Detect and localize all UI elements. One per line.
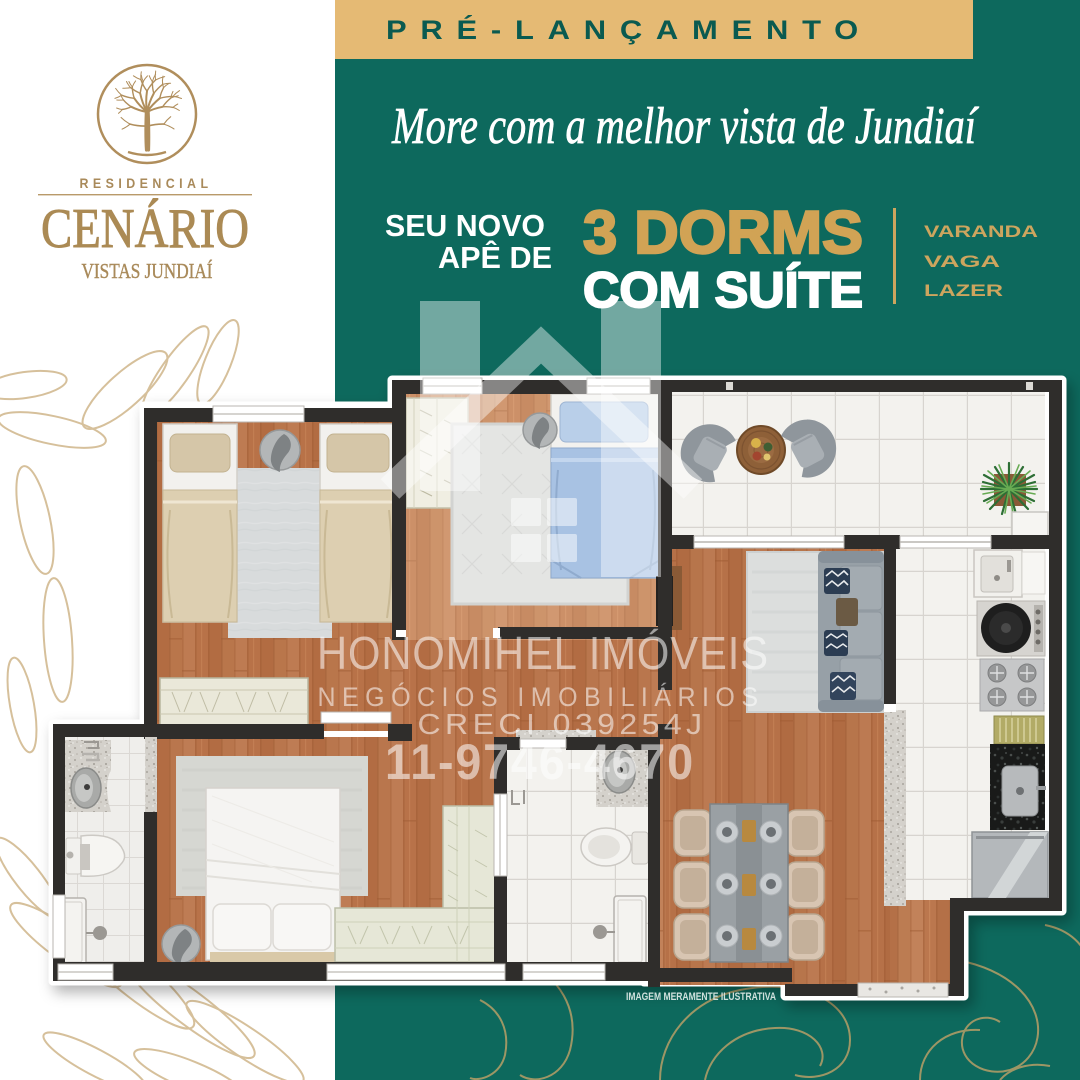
svg-text:VAGA: VAGA xyxy=(924,252,1000,271)
svg-text:11-9746-4670: 11-9746-4670 xyxy=(385,734,695,790)
svg-text:APÊ DE: APÊ DE xyxy=(438,239,552,275)
svg-text:More com a melhor vista de Jun: More com a melhor vista de Jundiaí xyxy=(391,98,979,155)
svg-text:LAZER: LAZER xyxy=(924,281,1003,300)
svg-text:HONOMIHEL IMÓVEIS: HONOMIHEL IMÓVEIS xyxy=(317,627,769,679)
svg-text:SEU NOVO: SEU NOVO xyxy=(385,208,545,243)
svg-text:3 DORMS: 3 DORMS xyxy=(583,199,863,266)
svg-text:RESIDENCIAL: RESIDENCIAL xyxy=(80,175,213,191)
svg-text:PRÉ-LANÇAMENTO: PRÉ-LANÇAMENTO xyxy=(386,14,872,45)
svg-text:NEGÓCIOS IMOBILIÁRIOS: NEGÓCIOS IMOBILIÁRIOS xyxy=(318,681,765,712)
svg-text:VISTAS JUNDIAÍ: VISTAS JUNDIAÍ xyxy=(82,259,213,283)
svg-text:IMAGEM MERAMENTE ILUSTRATIVA: IMAGEM MERAMENTE ILUSTRATIVA xyxy=(626,991,776,1003)
svg-text:CENÁRIO: CENÁRIO xyxy=(41,198,249,260)
svg-text:VARANDA: VARANDA xyxy=(924,222,1038,241)
